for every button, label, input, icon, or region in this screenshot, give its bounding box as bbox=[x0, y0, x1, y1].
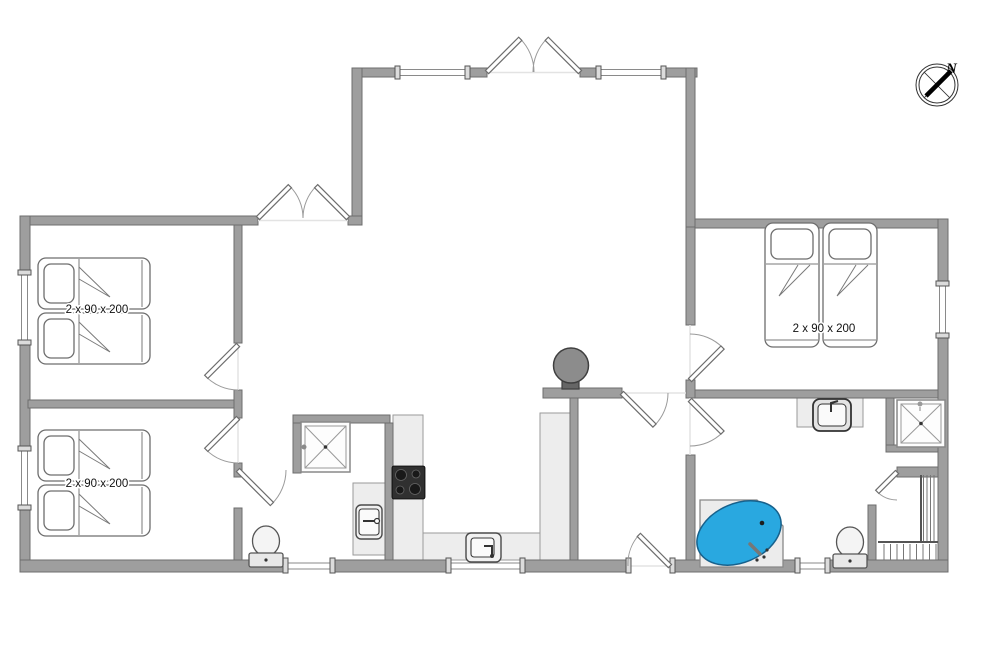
wall-segment bbox=[20, 342, 30, 448]
toilet-right bbox=[833, 527, 867, 568]
wall-segment bbox=[20, 216, 30, 272]
stove bbox=[392, 466, 425, 499]
wall-segment bbox=[293, 423, 301, 473]
wall-segment bbox=[686, 68, 695, 227]
window bbox=[936, 281, 949, 338]
wall-segment bbox=[686, 227, 695, 325]
wall-segment bbox=[234, 390, 242, 418]
shower-head-icon bbox=[918, 402, 923, 407]
door-bedroom-bottom-left bbox=[205, 416, 240, 463]
pillow bbox=[44, 319, 74, 358]
wall-segment bbox=[868, 505, 876, 560]
wall-segment bbox=[570, 398, 578, 560]
wall-segment bbox=[686, 380, 695, 398]
wood-stove bbox=[554, 348, 589, 389]
window bbox=[283, 558, 335, 573]
jet-icon bbox=[760, 521, 765, 526]
burner bbox=[412, 470, 420, 478]
door-bathroom-left bbox=[236, 468, 286, 505]
entrance-door-bottom bbox=[626, 533, 675, 573]
door-living-to-hall bbox=[620, 391, 686, 427]
pillow bbox=[44, 264, 74, 303]
compass-rose-icon: N bbox=[916, 61, 958, 106]
wall-segment bbox=[580, 68, 598, 77]
pillow bbox=[44, 436, 74, 475]
shower-right bbox=[897, 400, 945, 447]
staircase bbox=[878, 475, 938, 560]
wall-segment bbox=[20, 216, 258, 225]
french-doors-top bbox=[485, 37, 581, 73]
wall-segment bbox=[686, 455, 695, 560]
toilet-left bbox=[249, 526, 283, 567]
bed-size-label: 2 x 90 x 200 bbox=[66, 478, 129, 490]
kitchen-sink bbox=[466, 533, 501, 562]
floor-plan-drawing: N 2 x 90 x 200 2 x 90 x 200 2 x 90 x 200 bbox=[0, 0, 1000, 667]
burner bbox=[410, 484, 421, 495]
wall-segment bbox=[332, 560, 448, 572]
window bbox=[18, 270, 31, 345]
wall-segment bbox=[348, 216, 362, 225]
wall-segment bbox=[938, 219, 948, 283]
wall-segment bbox=[352, 68, 362, 225]
wall-segment bbox=[522, 560, 628, 572]
wall-segment bbox=[234, 508, 242, 560]
washbasin-left bbox=[356, 505, 382, 539]
wall-segment bbox=[886, 398, 894, 445]
door-staircase bbox=[876, 470, 899, 500]
wall-segment bbox=[28, 400, 234, 408]
wall-segment bbox=[695, 390, 938, 398]
burner bbox=[396, 486, 404, 494]
pillow bbox=[829, 229, 871, 259]
pillow bbox=[771, 229, 813, 259]
wall-segment bbox=[20, 560, 285, 572]
shower-valve-icon bbox=[302, 445, 307, 450]
door-bedroom-right bbox=[688, 325, 724, 382]
window bbox=[395, 66, 470, 79]
wall-segment bbox=[938, 335, 948, 572]
wall-segment bbox=[897, 467, 938, 477]
shower-left bbox=[301, 422, 350, 472]
french-doors-left-wing bbox=[256, 185, 349, 221]
wall-segment bbox=[234, 225, 242, 343]
burner bbox=[396, 470, 407, 481]
compass-north-label: N bbox=[945, 61, 958, 77]
bed-size-label: 2 x 90 x 200 bbox=[793, 323, 856, 335]
vanity-sink-right bbox=[813, 399, 851, 431]
door-bathroom-right bbox=[688, 398, 724, 455]
window bbox=[795, 558, 830, 573]
spa-bath bbox=[687, 489, 791, 578]
window bbox=[18, 446, 31, 510]
window bbox=[596, 66, 666, 79]
wall-segment bbox=[543, 388, 622, 398]
door-bedroom-top-left bbox=[205, 343, 240, 390]
wall-segment bbox=[695, 219, 948, 228]
floor-plan: N 2 x 90 x 200 2 x 90 x 200 2 x 90 x 200 bbox=[0, 0, 1000, 667]
pillow bbox=[44, 491, 74, 530]
bed-size-label: 2 x 90 x 200 bbox=[66, 304, 129, 316]
